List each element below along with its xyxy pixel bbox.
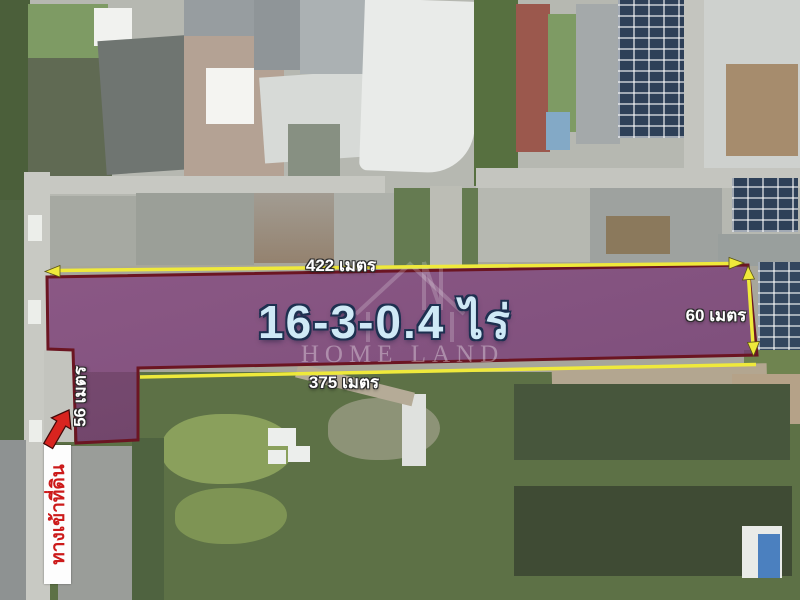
top-dimension-label: 422 เมตร [281, 252, 401, 279]
right-dimension-label: 60 เมตร [666, 302, 766, 329]
bottom-dimension-label: 375 เมตร [284, 369, 404, 396]
aerial-photo: ทางเข้าที่ดิน [0, 0, 800, 600]
left-dimension-label: 56 เมตร [67, 362, 94, 432]
plot-area-label: 16-3-0.4 ไร่ [175, 286, 595, 359]
